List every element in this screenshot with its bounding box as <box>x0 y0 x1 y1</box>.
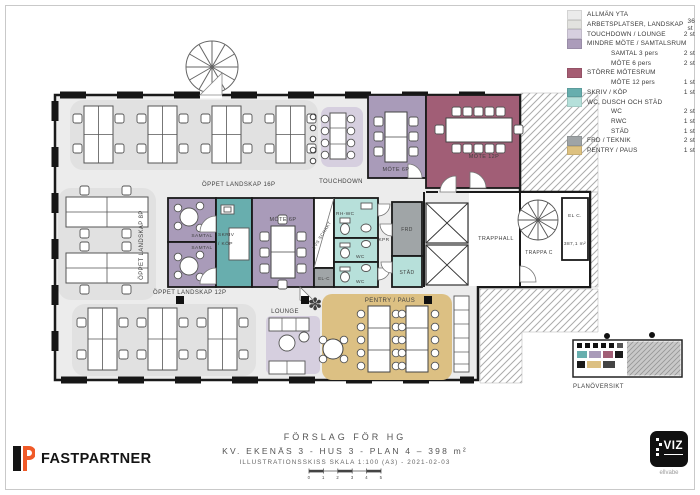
label-trapphall: TRAPPHALL <box>478 236 514 242</box>
pentry-zone <box>319 294 469 380</box>
label-rhwc: RH-WC <box>336 211 355 217</box>
title-line3: ILLUSTRATIONSSKISS SKALA 1:100 (A3) - 20… <box>110 459 580 466</box>
legend-label: WC, DUSCH OCH STÄD <box>587 99 691 106</box>
label-kop: / KÖP <box>218 240 233 247</box>
legend-label: MÖTE 12 pers <box>587 79 680 86</box>
legend-label: MINDRE MÖTE / SAMTALSRUM <box>587 40 691 47</box>
legend-swatch <box>567 10 582 20</box>
legend-count: 1 st <box>680 89 695 96</box>
legend-swatch <box>567 146 582 156</box>
legend-swatch <box>567 39 582 49</box>
legend-item: SKRIV / KÖP1 st <box>567 88 695 98</box>
legend-swatch <box>567 97 582 107</box>
scale-tick: 5 <box>380 475 383 480</box>
fastpartner-logo: FASTPARTNER <box>13 446 151 471</box>
scale-tick: 1 <box>322 475 325 480</box>
legend-label: ARBETSPLATSER, LANDSKAP <box>587 21 683 28</box>
legend-count: 2 st <box>680 31 695 38</box>
title-line1: FÖRSLAG FÖR HG <box>110 432 580 442</box>
legend-item: WC, DUSCH OCH STÄD <box>567 97 695 107</box>
scale-tick: 0 <box>308 475 311 480</box>
legend-item: TOUCHDOWN / LOUNGE2 st <box>567 29 695 39</box>
fastpartner-mark-icon <box>13 446 35 471</box>
legend-item: ARBETSPLATSER, LANDSKAP36 st <box>567 20 695 30</box>
legend-label: SKRIV / KÖP <box>587 89 680 96</box>
label-frd: FRD <box>401 227 412 233</box>
legend-label: TOUCHDOWN / LOUNGE <box>587 31 680 38</box>
label-elc-small: EL-C <box>318 276 330 281</box>
legend-count: 36 st <box>683 18 695 32</box>
legend-item: RWC1 st <box>567 117 695 127</box>
label-mote6p-mid: MÖTE 6P <box>270 216 297 223</box>
label-skriv: SKRIV <box>218 232 235 238</box>
plan-overview-map: PLANÖVERSIKT <box>573 332 682 390</box>
label-elc: EL C. <box>568 213 582 219</box>
legend-count: 2 st <box>680 60 695 67</box>
label-stad: STÄD <box>400 269 415 276</box>
legend-swatch <box>567 20 582 30</box>
label-landskap8: ÖPPET LANDSKAP 8P <box>138 210 145 280</box>
legend-count: 1 st <box>680 147 695 154</box>
legend-count: 2 st <box>680 50 695 57</box>
label-samtal1: SAMTAL <box>191 233 212 239</box>
legend-swatch <box>567 88 582 98</box>
legend-item: PENTRY / PAUS1 st <box>567 146 695 156</box>
legend-item: FRD / TEKNIK2 st <box>567 136 695 146</box>
label-samtal2: SAMTAL <box>191 245 212 251</box>
legend-item: STÖRRE MÖTESRUM <box>567 68 695 78</box>
legend-item: ALLMÄN YTA <box>567 10 695 20</box>
legend-item: MÖTE 6 pers2 st <box>567 58 695 68</box>
label-planoversikt: PLANÖVERSIKT <box>573 383 624 390</box>
label-touchdown: TOUCHDOWN <box>319 179 363 185</box>
room-el-c <box>562 198 588 260</box>
label-kpr: KPR <box>378 237 389 243</box>
title-block: FÖRSLAG FÖR HG KV. EKENÄS 3 - HUS 3 - PL… <box>110 432 580 480</box>
title-line2: KV. EKENÄS 3 - HUS 3 - PLAN 4 – 398 m² <box>110 446 580 456</box>
legend-label: SAMTAL 3 pers <box>587 50 680 57</box>
legend-item: MÖTE 12 pers1 st <box>567 78 695 88</box>
label-mote12p: MÖTE 12P <box>469 153 499 160</box>
legend-swatch <box>567 136 582 146</box>
legend-label: STÖRRE MÖTESRUM <box>587 69 691 76</box>
label-trappac: TRAPPA C <box>525 250 553 256</box>
scale-tick: 3 <box>351 475 354 480</box>
label-wc2: WC <box>356 279 365 285</box>
legend-item: SAMTAL 3 pers2 st <box>567 49 695 59</box>
legend-label: PENTRY / PAUS <box>587 147 680 154</box>
viz-subtext: ellvabe <box>646 470 692 476</box>
label-landskap16: ÖPPET LANDSKAP 16P <box>202 181 275 188</box>
label-pentry: PENTRY / PAUS <box>365 298 415 304</box>
legend-label: MÖTE 6 pers <box>587 60 680 67</box>
legend-item: MINDRE MÖTE / SAMTALSRUM <box>567 39 695 49</box>
legend-swatch <box>567 29 582 39</box>
legend-item: STÄD1 st <box>567 126 695 136</box>
scale-tick: 2 <box>336 475 339 480</box>
trappa-c-stair <box>518 200 558 240</box>
mote6p-top-furniture <box>374 112 418 162</box>
label-lounge: LOUNGE <box>271 309 299 315</box>
plant-icon: ✽ <box>308 295 323 314</box>
viz-wordmark: VIZ <box>664 440 683 455</box>
lounge-zone <box>266 316 320 374</box>
label-mote6p-top: MÖTE 6P <box>383 166 410 173</box>
legend-count: 2 st <box>680 108 695 115</box>
exterior-spiral-stair <box>186 41 238 99</box>
fastpartner-wordmark: FASTPARTNER <box>41 451 151 467</box>
legend-count: 1 st <box>680 118 695 125</box>
label-area: 387,1 m² <box>564 241 586 247</box>
legend-label: ALLMÄN YTA <box>587 11 691 18</box>
scale-tick: 4 <box>365 475 368 480</box>
legend-label: STÄD <box>587 128 680 135</box>
legend-count: 2 st <box>680 137 695 144</box>
viz-logo-icon: VIZ <box>650 431 688 467</box>
legend-swatch <box>567 68 582 78</box>
legend-label: RWC <box>587 118 680 125</box>
legend-count: 1 st <box>680 128 695 135</box>
legend: ALLMÄN YTA ARBETSPLATSER, LANDSKAP36 st … <box>567 10 695 155</box>
legend-count: 1 st <box>680 79 695 86</box>
legend-label: WC <box>587 108 680 115</box>
viz-logo: VIZ ellvabe <box>646 431 692 476</box>
scale-bar: 0 1 2 3 4 5 <box>305 468 385 480</box>
label-wc1: WC <box>356 254 365 260</box>
label-landskap12: ÖPPET LANDSKAP 12P <box>153 289 226 296</box>
drawing-sheet: ✽ ÖPPET LANDSKAP 16P ÖPPET LANDSKAP 8P Ö… <box>0 0 700 495</box>
legend-label: FRD / TEKNIK <box>587 137 680 144</box>
filmstrip-dots-icon <box>656 438 662 456</box>
legend-item: WC2 st <box>567 107 695 117</box>
